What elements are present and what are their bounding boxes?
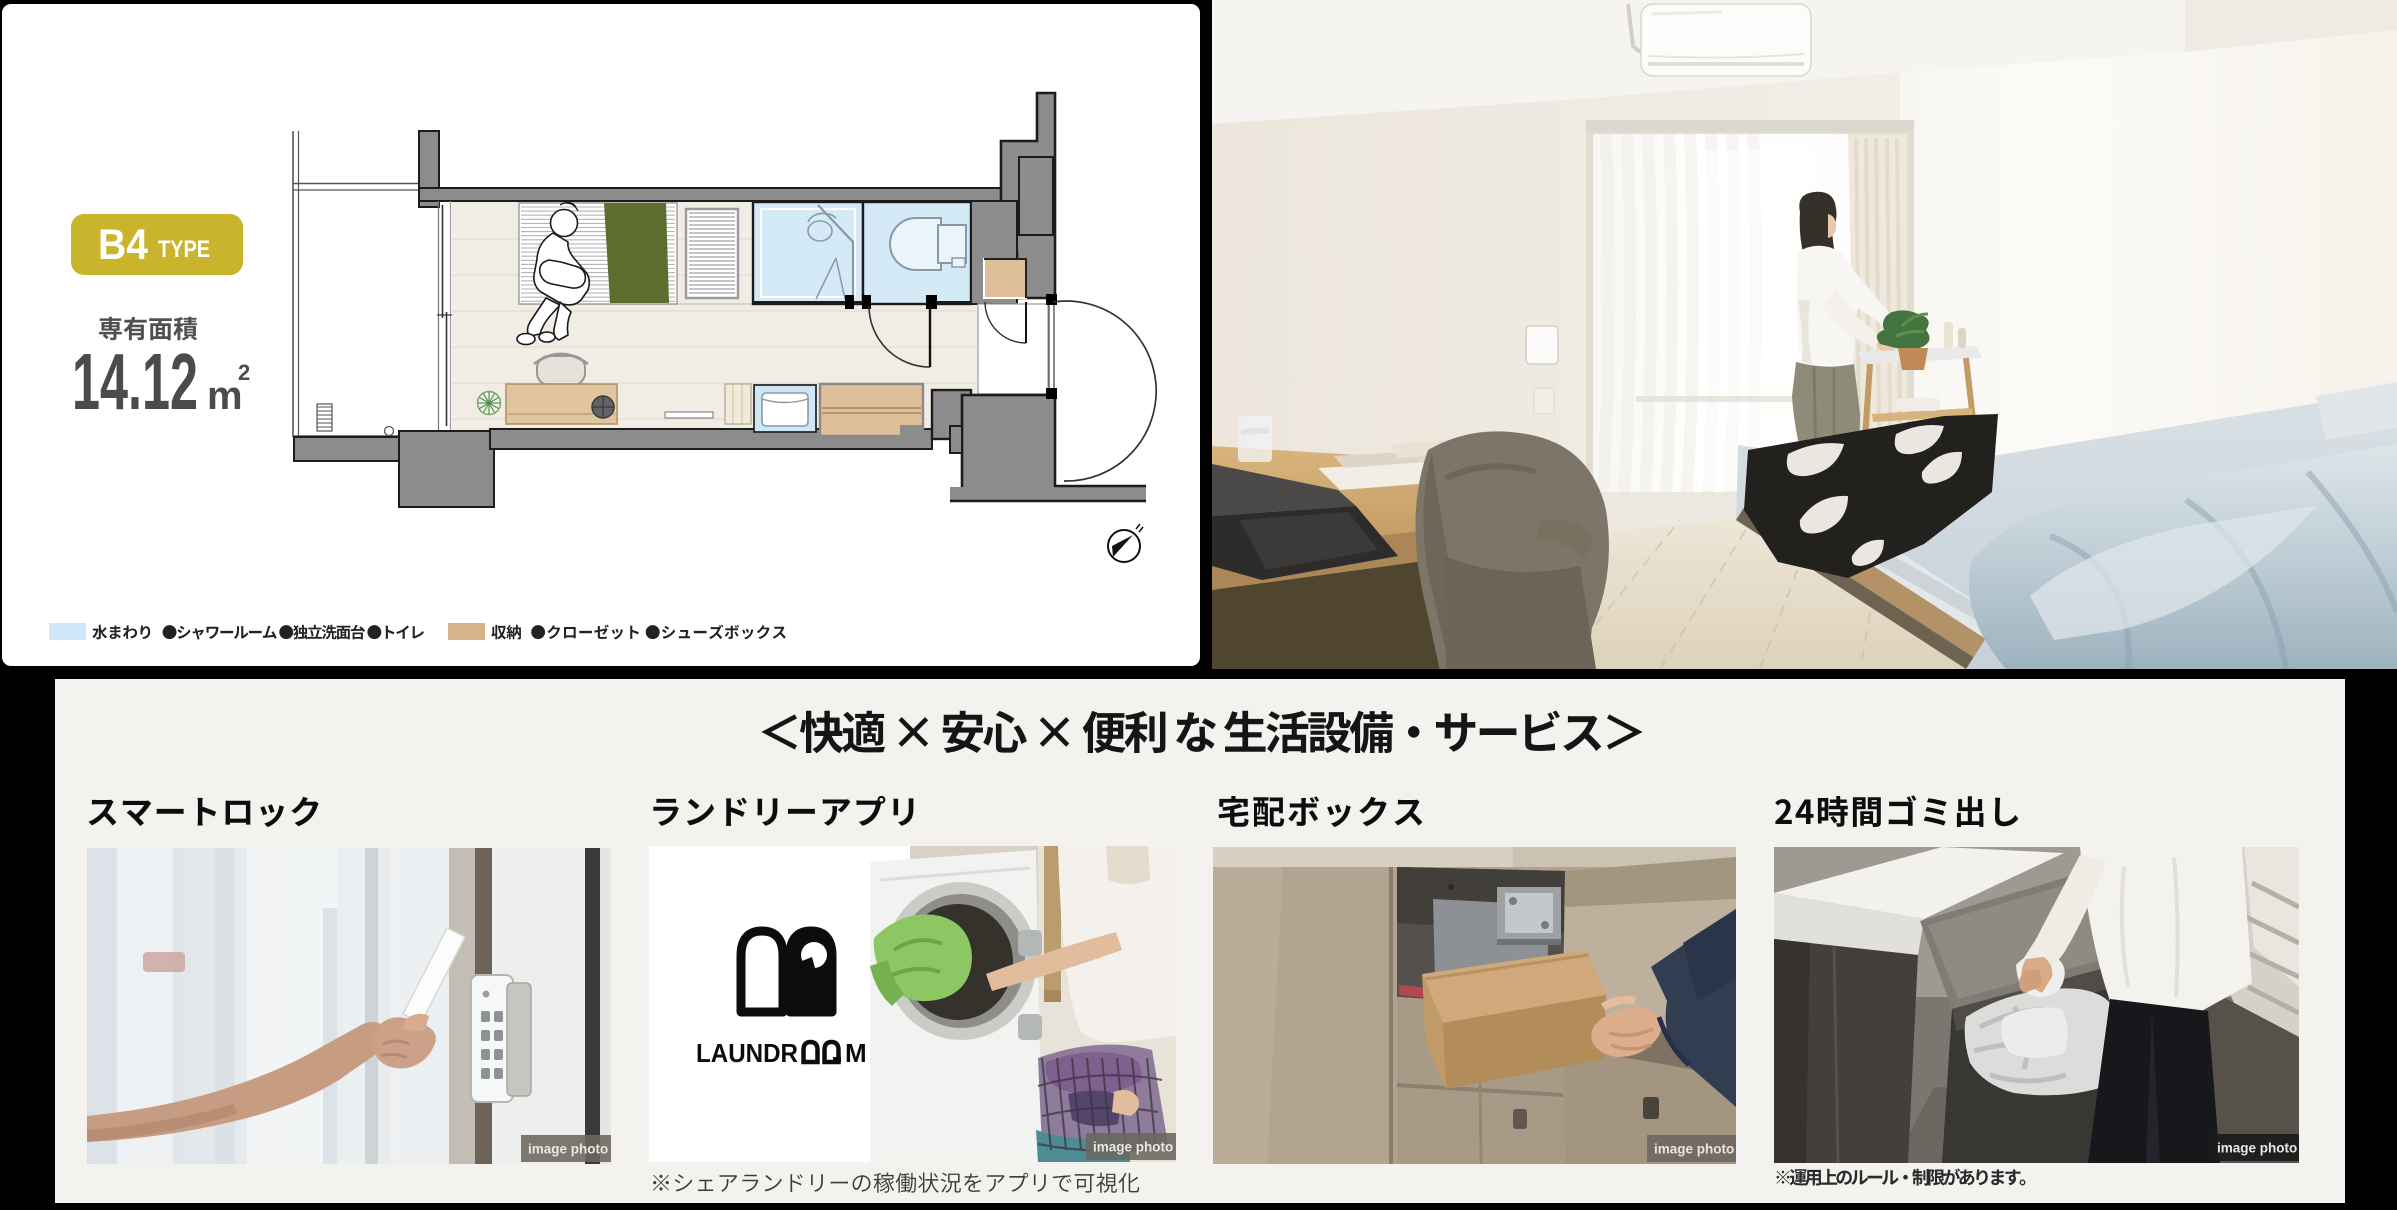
svg-text:image photo: image photo: [528, 1142, 608, 1157]
svg-text:LAUNDR: LAUNDR: [696, 1038, 798, 1068]
svg-text:image photo: image photo: [1093, 1140, 1173, 1155]
svg-text:image photo: image photo: [1654, 1142, 1734, 1157]
svg-text:14.12: 14.12: [72, 337, 198, 426]
svg-text:B4: B4: [98, 221, 148, 269]
svg-text:TYPE: TYPE: [158, 236, 210, 263]
svg-text:M: M: [845, 1038, 867, 1068]
svg-text:image photo: image photo: [2217, 1141, 2297, 1156]
svg-text:2: 2: [238, 360, 250, 385]
